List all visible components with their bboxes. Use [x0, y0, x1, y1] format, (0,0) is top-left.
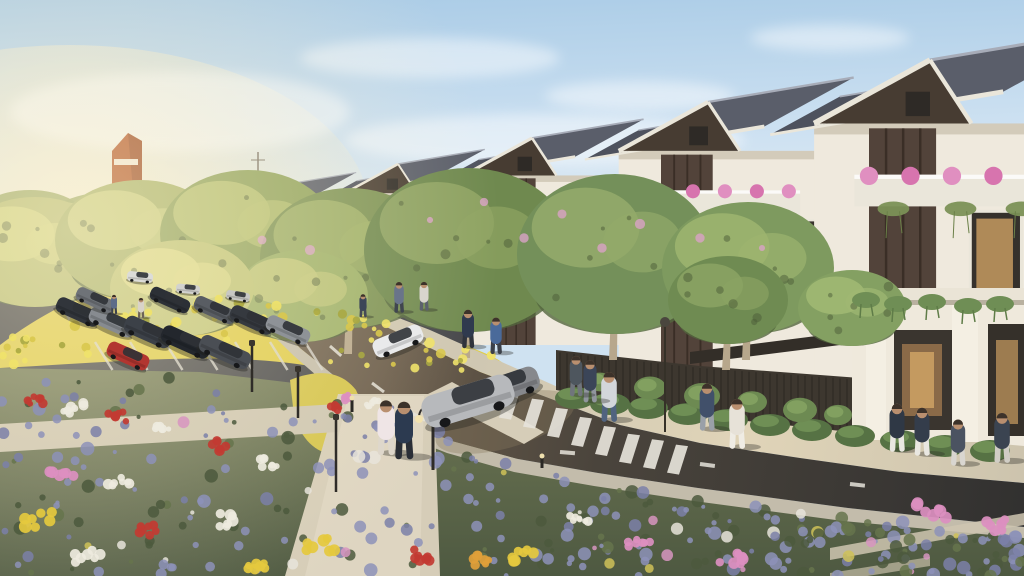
- garden-speckle: [39, 494, 45, 500]
- garden-speckle: [443, 436, 453, 446]
- balcony-flowers: [943, 167, 961, 185]
- garden-speckle: [953, 544, 961, 552]
- garden-speckle: [702, 558, 709, 565]
- flower: [335, 403, 340, 408]
- garden-speckle: [770, 531, 780, 541]
- garden-speckle: [287, 559, 298, 570]
- garden-speckle: [648, 516, 658, 526]
- canopy-speck: [834, 326, 842, 334]
- garden-speckle: [784, 536, 795, 547]
- yellow-flower-speckle: [459, 367, 465, 373]
- fence-vine-light: [827, 406, 844, 417]
- flower: [78, 398, 88, 408]
- garden-speckle: [313, 462, 324, 473]
- garden-speckle: [357, 467, 369, 479]
- flower: [119, 408, 126, 415]
- person-shadow: [421, 308, 438, 312]
- person-shadow: [732, 444, 761, 450]
- garden-speckle: [890, 540, 902, 552]
- architectural-rendering: Photorealistic architectural rendering o…: [0, 0, 1024, 576]
- yellow-flower-speckle: [30, 336, 36, 342]
- garden-speckle: [15, 502, 21, 508]
- garden-speckle: [81, 464, 87, 470]
- garden-speckle: [929, 568, 935, 574]
- yellow-flower-speckle: [328, 359, 333, 364]
- yellow-flower-speckle: [9, 333, 17, 341]
- flower: [303, 538, 313, 548]
- garden-speckle: [129, 559, 133, 563]
- garden-speckle: [683, 507, 689, 513]
- person-shadow: [464, 345, 486, 350]
- yellow-flower-speckle: [84, 350, 92, 358]
- garden-speckle: [232, 420, 237, 425]
- garden-speckle: [798, 527, 808, 537]
- yellow-flower-speckle: [361, 323, 367, 329]
- garden-speckle: [28, 569, 34, 575]
- garden-speckle: [212, 389, 220, 397]
- garden-speckle: [473, 500, 479, 506]
- canopy-speck: [773, 266, 777, 270]
- person-shadow: [361, 316, 374, 319]
- garden-speckle: [764, 513, 771, 520]
- garden-speckle: [612, 511, 621, 520]
- garden-speckle: [429, 523, 435, 529]
- garden-speckle: [672, 507, 677, 512]
- garden-speckle: [841, 522, 853, 534]
- fence-vine-light: [787, 400, 807, 414]
- garden-speckle: [727, 519, 731, 523]
- flower: [216, 445, 224, 453]
- garden-speckle: [647, 499, 654, 506]
- garden-speckle: [536, 516, 547, 527]
- garden-speckle: [70, 392, 79, 401]
- yellow-flower-speckle: [426, 356, 432, 362]
- garden-speckle: [866, 537, 876, 547]
- garden-speckle: [15, 562, 21, 568]
- garden-speckle: [163, 372, 175, 384]
- garden-speckle: [796, 509, 806, 519]
- yellow-flower-speckle: [372, 327, 377, 332]
- yellow-flower-speckle: [4, 343, 11, 350]
- yellow-flower-speckle: [59, 342, 65, 348]
- garden-speckle: [943, 557, 956, 570]
- garden-speckle: [146, 454, 156, 464]
- plant-strand: [892, 308, 893, 322]
- garden-speckle: [875, 528, 885, 538]
- garden-speckle: [281, 537, 288, 544]
- yellow-flower-speckle: [23, 344, 28, 349]
- yellow-flower-speckle: [215, 295, 223, 303]
- garden-speckle: [76, 380, 80, 384]
- garden-speckle: [463, 494, 473, 504]
- storefront-window-glow: [996, 340, 1018, 424]
- garden-speckle: [241, 527, 250, 536]
- garden-speckle: [190, 510, 194, 514]
- flower: [245, 562, 252, 569]
- yellow-flower-speckle: [339, 348, 344, 353]
- plant-strand: [994, 308, 995, 322]
- yellow-flower-speckle: [16, 348, 22, 354]
- flower: [1000, 515, 1009, 524]
- flower: [70, 549, 81, 560]
- flower: [911, 499, 923, 511]
- garden-speckle: [708, 526, 721, 539]
- garden-speckle: [451, 466, 456, 471]
- flower: [328, 544, 340, 556]
- garden-speckle: [712, 512, 719, 519]
- garden-speckle: [482, 547, 486, 551]
- yellow-flower-speckle: [410, 363, 419, 372]
- garden-speckle: [692, 495, 704, 507]
- garden-speckle: [178, 416, 190, 428]
- garden-speckle: [992, 551, 999, 558]
- flower: [119, 478, 126, 485]
- person-shadow: [604, 417, 633, 423]
- garden-speckle: [578, 547, 591, 560]
- person-shadow: [396, 310, 414, 314]
- flower: [342, 393, 348, 399]
- garden-speckle: [497, 535, 505, 543]
- garden-speckle: [500, 458, 512, 470]
- garden-speckle: [384, 518, 394, 528]
- hanging-plant: [986, 296, 1014, 312]
- garden-speckle: [466, 473, 474, 481]
- garden-speckle: [637, 486, 650, 499]
- garden-speckle: [721, 531, 733, 543]
- garden-speckle: [474, 459, 478, 463]
- garden-speckle: [305, 487, 312, 494]
- garden-speckle: [471, 521, 482, 532]
- garden-speckle: [972, 538, 977, 543]
- garden-speckle: [336, 503, 349, 516]
- garden-speckle: [203, 433, 208, 438]
- garden-speckle: [629, 519, 641, 531]
- flower: [123, 418, 129, 424]
- yellow-flower-speckle: [271, 301, 281, 311]
- garden-speckle: [169, 563, 177, 571]
- hanging-plant: [884, 296, 912, 312]
- yellow-flower-speckle: [376, 330, 383, 337]
- garden-speckle: [260, 492, 273, 505]
- hanging-plant: [954, 298, 982, 314]
- yellow-flower-speckle: [144, 308, 152, 316]
- garden-speckle: [601, 507, 610, 516]
- garden-speckle: [771, 515, 780, 524]
- garden-speckle: [1010, 530, 1022, 542]
- garden-speckle: [52, 414, 61, 423]
- garden-speckle: [865, 531, 871, 537]
- garden-speckle: [496, 511, 505, 520]
- garden-speckle: [578, 510, 582, 514]
- flower: [577, 515, 583, 521]
- flower: [135, 527, 145, 537]
- garden-speckle: [41, 378, 50, 387]
- yellow-flower-speckle: [338, 309, 347, 318]
- garden-speckle: [365, 532, 377, 544]
- canopy-speck: [884, 282, 894, 292]
- canopy-speck: [828, 293, 833, 298]
- flower: [323, 534, 332, 543]
- garden-speckle: [553, 473, 559, 479]
- flower: [71, 405, 78, 412]
- garden-speckle: [908, 563, 915, 570]
- garden-speckle: [205, 562, 215, 572]
- flower: [927, 509, 940, 522]
- person-shadow: [953, 461, 980, 467]
- flower: [68, 471, 78, 481]
- flower: [375, 398, 382, 405]
- garden-speckle: [601, 496, 606, 501]
- flower: [212, 436, 221, 445]
- garden-speckle: [134, 384, 145, 395]
- flower: [423, 552, 432, 561]
- garden-speckle: [831, 521, 843, 533]
- garden-speckle: [73, 432, 80, 439]
- flower: [640, 539, 648, 547]
- person-shadow: [917, 451, 945, 457]
- garden-speckle: [274, 505, 282, 513]
- bollard-glow: [350, 396, 355, 401]
- person-shadow: [586, 398, 611, 403]
- garden-speckle: [82, 480, 95, 493]
- garden-speckle: [187, 515, 193, 521]
- flower: [624, 538, 633, 547]
- flower: [985, 520, 995, 530]
- garden-speckle: [181, 496, 188, 503]
- garden-speckle: [769, 557, 782, 570]
- person-shadow: [492, 351, 513, 356]
- garden-speckle: [904, 534, 916, 546]
- garden-speckle: [221, 464, 230, 473]
- garden-speckle: [283, 508, 289, 514]
- yellow-flower-speckle: [423, 348, 428, 353]
- flower: [260, 563, 269, 572]
- garden-speckle: [280, 403, 287, 410]
- flower: [369, 399, 375, 405]
- garden-speckle: [113, 450, 117, 454]
- flower: [716, 558, 724, 566]
- garden-speckle: [501, 470, 507, 476]
- flower: [158, 425, 167, 434]
- flower: [365, 404, 371, 410]
- garden-speckle: [52, 452, 63, 463]
- garden-speckle: [71, 456, 80, 465]
- garden-speckle: [132, 487, 137, 492]
- garden-speckle: [193, 542, 199, 548]
- garden-speckle: [25, 422, 32, 429]
- garden-speckle: [224, 418, 229, 423]
- flower: [26, 397, 32, 403]
- garden-speckle: [1002, 556, 1008, 562]
- flower: [145, 522, 153, 530]
- yellow-flower-speckle: [221, 330, 228, 337]
- garden-speckle: [496, 498, 501, 503]
- garden-speckle: [2, 461, 9, 468]
- flower: [410, 545, 418, 553]
- flower: [152, 527, 160, 535]
- yellow-flower-speckle: [353, 316, 360, 323]
- scene-svg: [0, 0, 1024, 576]
- garden-speckle: [579, 563, 587, 571]
- garden-speckle: [354, 521, 366, 533]
- garden-speckle: [70, 567, 74, 571]
- lamp-head: [295, 366, 301, 372]
- garden-speckle: [197, 494, 210, 507]
- yellow-flower-speckle: [436, 349, 446, 359]
- flower: [632, 539, 641, 548]
- garden-speckle: [2, 528, 9, 535]
- flower: [332, 406, 336, 410]
- garden-speckle: [599, 544, 603, 548]
- hedge-highlight: [631, 398, 657, 410]
- garden-speckle: [749, 501, 761, 513]
- garden-speckle: [645, 564, 654, 573]
- garden-speckle: [267, 427, 278, 438]
- lamp-glow: [415, 415, 423, 423]
- garden-speckle: [156, 500, 165, 509]
- garden-speckle: [957, 561, 970, 574]
- garden-speckle: [945, 535, 954, 544]
- garden-speckle: [921, 539, 932, 550]
- garden-speckle: [413, 471, 418, 476]
- garden-speckle: [923, 553, 930, 560]
- balcony-flowers: [984, 167, 1002, 185]
- yellow-flower-speckle: [364, 363, 370, 369]
- flower: [269, 462, 276, 469]
- garden-speckle: [74, 517, 84, 527]
- garden-speckle: [207, 405, 216, 414]
- garden-speckle: [617, 488, 622, 493]
- flower: [216, 509, 225, 518]
- garden-speckle: [380, 506, 388, 514]
- flower: [44, 466, 55, 477]
- hedge-highlight: [928, 436, 954, 448]
- yellow-flower-speckle: [171, 317, 181, 327]
- garden-speckle: [353, 450, 366, 463]
- flower: [104, 410, 112, 418]
- garden-speckle: [671, 523, 683, 535]
- garden-speckle: [843, 550, 855, 562]
- garden-speckle: [958, 533, 968, 543]
- garden-speckle: [90, 426, 101, 437]
- flower: [528, 547, 539, 558]
- flower: [60, 408, 67, 415]
- garden-speckle: [539, 494, 548, 503]
- garden-speckle: [281, 431, 295, 445]
- canopy-speck: [827, 314, 833, 320]
- balcony-flowers: [782, 184, 796, 198]
- person-shadow: [139, 317, 151, 320]
- garden-speckle: [801, 539, 810, 548]
- garden-speckle: [14, 453, 23, 462]
- balcony-flowers: [860, 167, 878, 185]
- cloud: [750, 25, 910, 51]
- garden-speckle: [749, 549, 754, 554]
- garden-speckle: [711, 520, 716, 525]
- flower: [583, 517, 592, 526]
- yellow-flower-speckle: [266, 303, 272, 309]
- hedge-highlight: [753, 415, 779, 427]
- garden-speckle: [896, 515, 910, 529]
- garden-speckle: [598, 533, 605, 540]
- garden-speckle: [864, 519, 871, 526]
- garden-speckle: [604, 558, 614, 568]
- flower: [507, 553, 517, 563]
- plant-strand: [926, 306, 927, 320]
- garden-speckle: [983, 558, 989, 564]
- fence-vine-light: [637, 379, 656, 392]
- person-shadow: [398, 453, 432, 460]
- sign-head: [660, 317, 670, 327]
- yellow-flower-speckle: [22, 358, 28, 364]
- flower: [27, 514, 36, 523]
- garden-speckle: [561, 529, 574, 542]
- yellow-flower-speckle: [458, 358, 463, 363]
- garden-speckle: [639, 548, 652, 561]
- garden-speckle: [559, 477, 570, 488]
- garden-speckle: [868, 568, 874, 574]
- hanging-plant: [852, 292, 880, 308]
- garden-speckle: [221, 411, 225, 415]
- garden-speckle: [331, 508, 337, 514]
- garden-speckle: [601, 541, 613, 553]
- garden-speckle: [66, 534, 71, 539]
- balcony-flowers: [901, 167, 919, 185]
- garden-speckle: [934, 526, 945, 537]
- person-shadow: [112, 313, 123, 315]
- garden-speckle: [687, 537, 693, 543]
- lamp-head: [333, 414, 339, 420]
- garden-speckle: [691, 558, 702, 569]
- garden-speckle: [344, 414, 352, 422]
- garden-speckle: [363, 434, 368, 439]
- garden-speckle: [486, 483, 495, 492]
- garden-speckle: [401, 524, 413, 536]
- lamp-head: [249, 340, 255, 346]
- garden-speckle: [814, 537, 825, 548]
- garden-speckle: [897, 551, 909, 563]
- garden-speckle: [95, 478, 104, 487]
- hanging-vine: [878, 202, 910, 217]
- yellow-flower-speckle: [9, 359, 19, 369]
- flower: [109, 481, 117, 489]
- garden-speckle: [568, 555, 575, 562]
- fence-vine-light: [740, 393, 758, 405]
- garden-speckle: [126, 389, 135, 398]
- garden-speckle: [283, 451, 292, 460]
- storefront-window-glow: [910, 352, 934, 408]
- garden-speckle: [60, 394, 69, 403]
- flower: [31, 522, 40, 531]
- garden-speckle: [117, 541, 126, 550]
- flower: [997, 526, 1006, 535]
- flower: [44, 515, 55, 526]
- garden-speckle: [550, 548, 554, 552]
- plant-strand: [962, 310, 963, 324]
- garden-speckle: [120, 397, 127, 404]
- hedge-highlight: [838, 426, 864, 438]
- garden-speckle: [159, 560, 169, 570]
- yellow-flower-speckle: [346, 323, 354, 331]
- flower: [566, 512, 574, 520]
- hanging-plant: [918, 294, 946, 310]
- bollard-glow: [540, 454, 545, 459]
- flower: [258, 462, 267, 471]
- garden-speckle: [234, 541, 243, 550]
- garden-speckle: [978, 536, 987, 545]
- garden-speckle: [341, 547, 351, 557]
- garden-speckle: [661, 549, 673, 561]
